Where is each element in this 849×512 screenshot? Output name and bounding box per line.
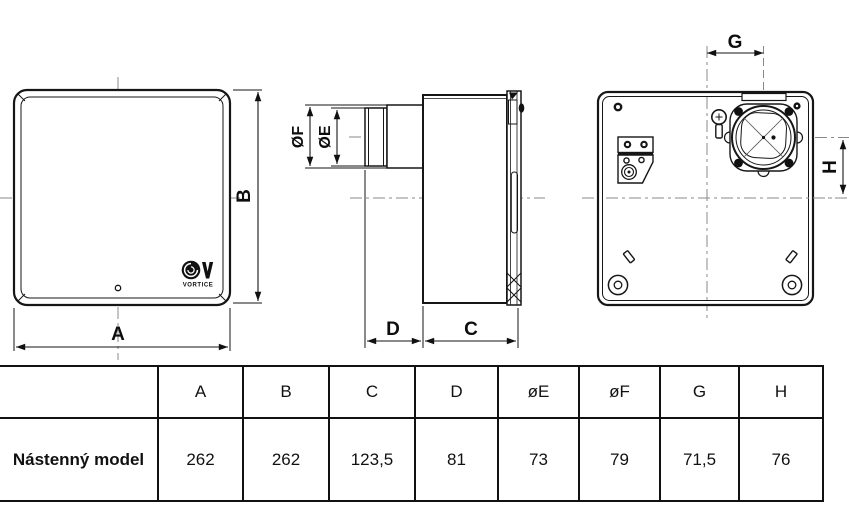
dim-label-g: G xyxy=(728,32,743,53)
value-of: 79 xyxy=(579,418,660,501)
duct-small-dot xyxy=(771,135,775,139)
value-b: 262 xyxy=(243,418,329,501)
dim-label-b: B xyxy=(234,189,255,203)
value-oe: 73 xyxy=(498,418,579,501)
value-c: 123,5 xyxy=(329,418,415,501)
table-header-row: A B C D øE øF G H xyxy=(0,366,823,418)
dim-label-c: C xyxy=(464,319,478,340)
front-dim-height: B xyxy=(233,90,262,303)
dimensions-table: A B C D øE øF G H Nástenný model 262 262… xyxy=(0,365,824,502)
duct-spigot-base xyxy=(387,105,423,168)
front-view-drawing: VORTICE B A xyxy=(0,77,262,360)
col-header-d: D xyxy=(415,366,498,418)
value-a: 262 xyxy=(158,418,243,501)
rear-dim-horizontal-offset: G xyxy=(707,32,764,53)
dim-label-oe: ØE xyxy=(317,125,334,148)
dim-label-of: ØF xyxy=(290,126,307,148)
rear-dim-vertical-offset: H xyxy=(820,140,843,194)
col-header-of: øF xyxy=(579,366,660,418)
side-view-drawing: ØF ØE D C xyxy=(290,91,545,348)
dim-label-a: A xyxy=(111,324,125,345)
dimension-drawings: VORTICE B A xyxy=(0,0,849,365)
table-data-row: Nástenný model 262 262 123,5 81 73 79 71… xyxy=(0,418,823,501)
fan-body-side xyxy=(423,95,507,303)
value-g: 71,5 xyxy=(660,418,739,501)
dim-label-d: D xyxy=(386,319,400,340)
col-header-a: A xyxy=(158,366,243,418)
table-corner-cell xyxy=(0,366,158,418)
rear-view-drawing: G H xyxy=(582,32,849,322)
col-header-h: H xyxy=(739,366,823,418)
technical-drawing-page: VORTICE B A xyxy=(0,0,849,512)
row-label-wall-model: Nástenný model xyxy=(0,418,158,501)
value-h: 76 xyxy=(739,418,823,501)
vortice-logo-text: VORTICE xyxy=(183,283,214,289)
value-d: 81 xyxy=(415,418,498,501)
duct-top-tab xyxy=(742,94,786,101)
front-cover-side xyxy=(507,91,521,305)
dim-label-h: H xyxy=(820,160,841,174)
col-header-b: B xyxy=(243,366,329,418)
col-header-g: G xyxy=(660,366,739,418)
front-dim-width: A xyxy=(14,308,230,351)
duct-center-point xyxy=(762,136,765,139)
cover-latch-knob xyxy=(519,103,525,112)
col-header-oe: øE xyxy=(498,366,579,418)
col-header-c: C xyxy=(329,366,415,418)
